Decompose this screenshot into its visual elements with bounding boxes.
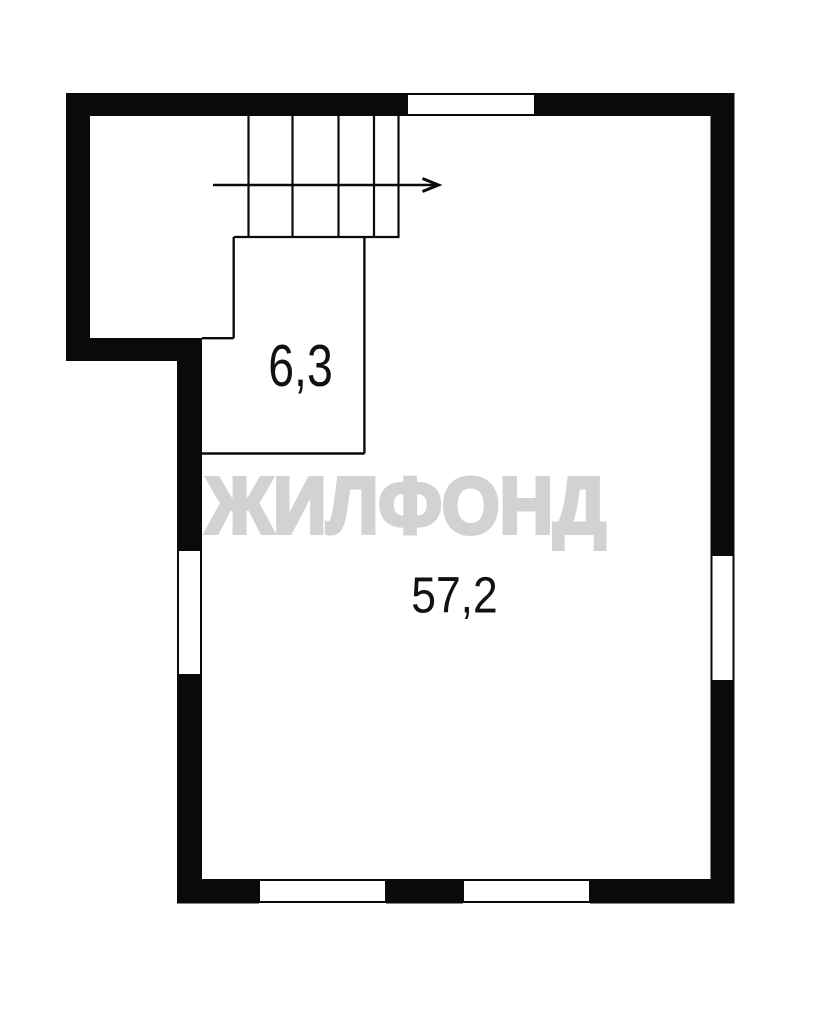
svg-text:6,3: 6,3 xyxy=(268,333,333,399)
svg-text:ЖИЛФОНД: ЖИЛФОНД xyxy=(205,461,606,550)
svg-text:57,2: 57,2 xyxy=(411,567,498,624)
